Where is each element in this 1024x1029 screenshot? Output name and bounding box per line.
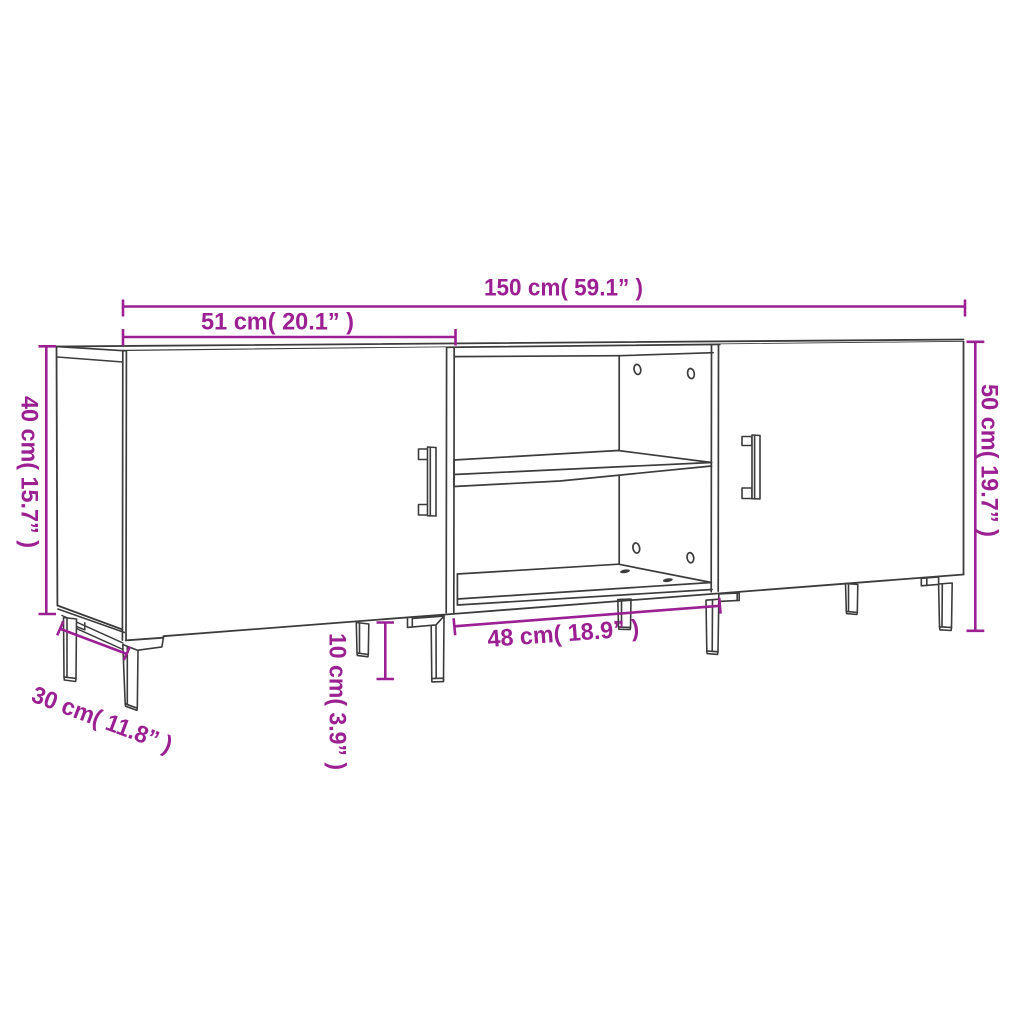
svg-text:51 cm( 20.1” ): 51 cm( 20.1” )	[201, 309, 354, 336]
svg-text:10 cm( 3.9” ): 10 cm( 3.9” )	[324, 633, 351, 770]
svg-text:50 cm( 19.7” ): 50 cm( 19.7” )	[976, 384, 1003, 537]
svg-text:40 cm( 15.7” ): 40 cm( 15.7” )	[16, 396, 43, 548]
svg-text:150 cm( 59.1” ): 150 cm( 59.1” )	[484, 275, 643, 302]
